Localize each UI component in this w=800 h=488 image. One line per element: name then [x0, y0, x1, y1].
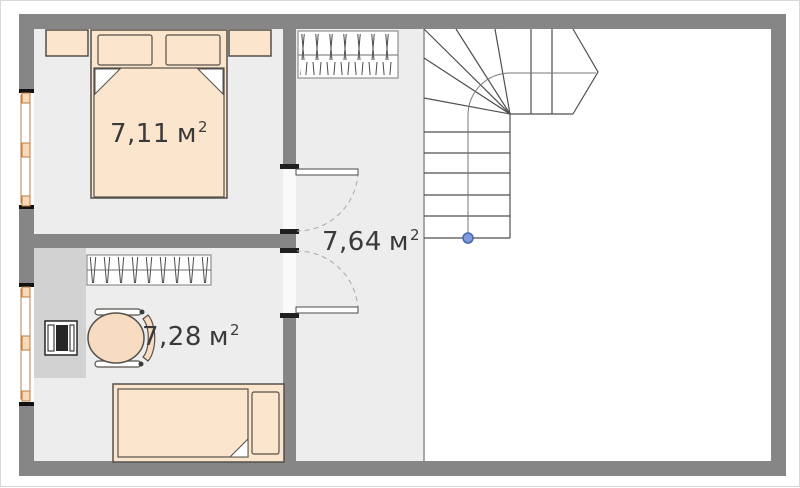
wall-right: [771, 14, 786, 476]
door-leaf: [296, 169, 358, 175]
pillow-icon: [98, 35, 152, 65]
window-pane: [22, 93, 30, 103]
wall-inner-vertical-stub: [283, 234, 296, 248]
walkline-dot-icon: [463, 233, 473, 243]
door-jamb: [280, 248, 299, 253]
pillow-icon: [252, 392, 279, 454]
window-top: [19, 89, 34, 209]
window-handle: [22, 143, 30, 157]
window-pane: [22, 391, 30, 401]
door-leaf: [296, 307, 358, 313]
door-jamb: [280, 229, 299, 234]
wall-left-seg1: [19, 14, 34, 89]
window-cap: [19, 89, 34, 93]
wall-left-seg3: [19, 406, 34, 476]
wall-room-divider: [34, 234, 283, 248]
area-sup: 2: [230, 321, 240, 339]
single-bed-icon: [113, 384, 284, 462]
area-sup: 2: [198, 118, 208, 136]
area-unit: м: [389, 227, 409, 257]
laptop-screen: [48, 325, 54, 351]
door-jamb: [280, 164, 299, 169]
desk-icon: [34, 248, 86, 378]
window-pane: [22, 287, 30, 297]
floor-plan-screenshot: 7,11м2 7,64м2 7,28м2: [0, 0, 800, 487]
floor-plan: 7,11м2 7,64м2 7,28м2: [1, 1, 800, 488]
area-unit: м: [209, 322, 229, 352]
chair-caster: [140, 310, 145, 315]
hallway-wardrobe-icon: [298, 31, 398, 78]
bedroom-bottom-area-label: 7,28м2: [142, 321, 240, 352]
area-value: 7,11: [110, 119, 170, 149]
bedroom-top-area-label: 7,11м2: [110, 118, 208, 149]
laptop-icon: [45, 321, 77, 355]
door-jamb: [280, 313, 299, 318]
hallway-area-label: 7,64м2: [322, 226, 420, 257]
door-opening-bottom: [283, 253, 296, 313]
wall-inner-vertical-seg1: [283, 29, 296, 164]
window-pane: [22, 196, 30, 206]
area-unit: м: [177, 119, 197, 149]
blanket: [118, 389, 248, 457]
stair-area-floor: [424, 29, 771, 461]
wall-left-seg2: [19, 209, 34, 283]
wall-inner-vertical-seg2: [283, 318, 296, 461]
chair-caster: [139, 362, 144, 367]
chair-seat: [88, 313, 144, 363]
window-cap: [19, 402, 34, 406]
nightstand-icon: [46, 30, 88, 56]
nightstand-icon: [229, 30, 271, 56]
area-sup: 2: [410, 226, 420, 244]
laptop-touchpad: [70, 325, 74, 351]
area-value: 7,28: [142, 322, 202, 352]
pillow-icon: [166, 35, 220, 65]
area-value: 7,64: [322, 227, 382, 257]
wall-top: [19, 14, 786, 29]
window-handle: [22, 336, 30, 350]
wardrobe-icon: [87, 255, 211, 285]
laptop-keyboard: [56, 325, 68, 351]
window-cap: [19, 283, 34, 287]
door-opening-top: [283, 169, 296, 229]
wall-bottom: [19, 461, 786, 476]
window-bottom: [19, 283, 34, 406]
